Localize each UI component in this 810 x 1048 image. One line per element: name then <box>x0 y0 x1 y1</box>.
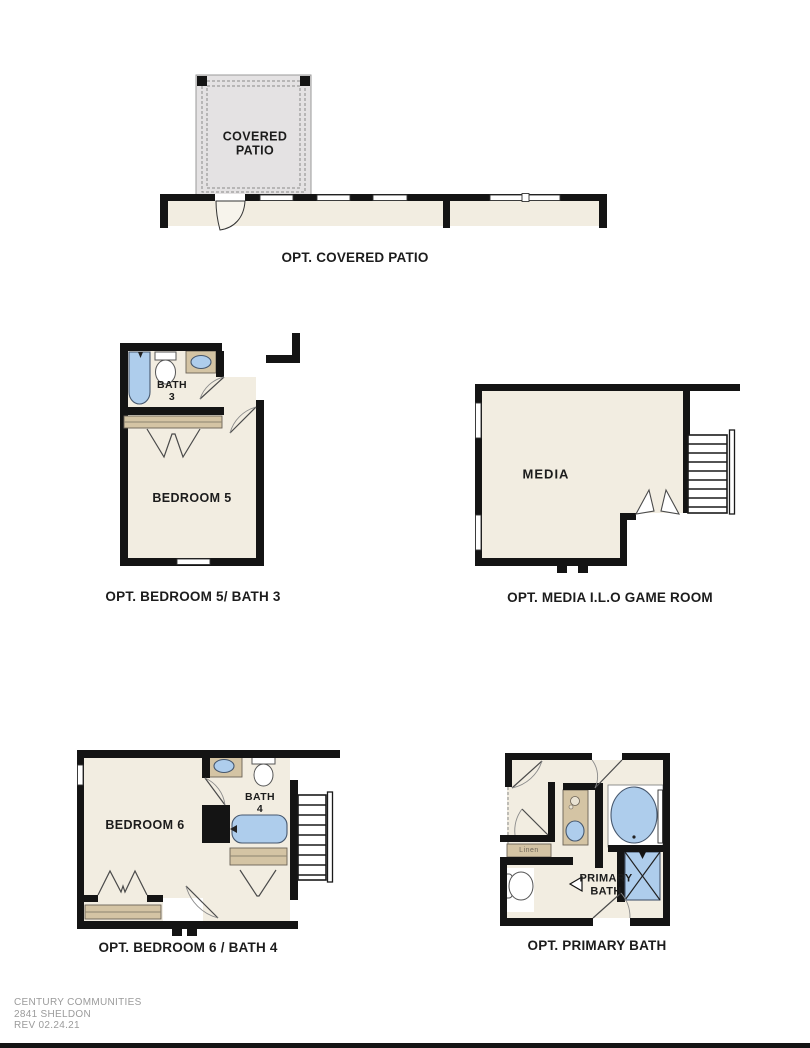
wall-bottom <box>77 921 298 929</box>
wall-middle-stub <box>443 194 450 228</box>
sink-icon <box>566 821 584 841</box>
bedroom6-label: BEDROOM 6 <box>105 818 184 832</box>
media-floor <box>482 391 683 558</box>
bath3-label: BATH 3 <box>157 379 187 403</box>
bottom-border-bar <box>0 1043 810 1048</box>
bedroom5-bath3-caption: OPT. BEDROOM 5/ BATH 3 <box>105 589 280 604</box>
patio-room-label: COVERED PATIO <box>223 130 288 159</box>
tub-drain <box>632 835 635 838</box>
stairs-icon <box>688 435 727 513</box>
wall-top <box>475 384 740 391</box>
revision-date: REV 02.24.21 <box>14 1020 142 1032</box>
wall-bottom <box>505 918 670 926</box>
wall-right <box>663 753 670 926</box>
window-left-upper <box>476 403 482 438</box>
wall-left-stub <box>505 753 512 787</box>
media-caption: OPT. MEDIA I.L.O GAME ROOM <box>507 590 713 605</box>
window-right <box>658 790 663 843</box>
wall-under-tub <box>608 845 663 852</box>
wall-vanity-right <box>595 783 603 868</box>
stairs-icon <box>298 795 326 880</box>
bedroom5-label: BEDROOM 5 <box>152 491 231 505</box>
wall-bath-right <box>216 351 224 377</box>
window <box>317 195 350 201</box>
wall-top <box>120 343 222 351</box>
closet-wall-left <box>84 895 98 902</box>
sink-icon <box>214 760 234 773</box>
wall-right-stub <box>599 194 607 228</box>
door-opening-top <box>592 753 622 760</box>
bedroom6-bath4-caption: OPT. BEDROOM 6 / BATH 4 <box>98 940 277 955</box>
toilet-bowl-icon <box>509 872 533 900</box>
bedroom5-bath3-plan: BATH 3 BEDROOM 5 <box>108 333 308 578</box>
wall-stub <box>187 929 197 936</box>
media-label: MEDIA <box>523 468 570 483</box>
wall-stub <box>578 566 588 573</box>
wall-left-stub <box>160 194 168 228</box>
wall-closet-bottom <box>500 835 555 842</box>
bedroom6-bath4-plan: BEDROOM 6 BATH 4 <box>68 743 358 943</box>
window-left <box>78 765 84 785</box>
bedroom5-floor <box>128 377 256 558</box>
wall-under-linen <box>500 857 573 865</box>
floorplan-sheet: COVERED PATIO OPT. COVERED PATIO <box>0 0 810 1048</box>
wall-right <box>256 400 264 566</box>
covered-patio-plan: COVERED PATIO <box>160 70 610 240</box>
wall-stub <box>557 566 567 573</box>
title-block: CENTURY COMMUNITIES 2841 SHELDON REV 02.… <box>14 997 142 1032</box>
toilet-bowl-icon <box>254 764 273 786</box>
plan-name: 2841 SHELDON <box>14 1009 142 1021</box>
wall-left-lower <box>500 857 507 926</box>
door-opening-bottom <box>593 918 630 926</box>
bedroom5-bath3-drawing <box>108 333 308 578</box>
primary-bath-caption: OPT. PRIMARY BATH <box>528 938 667 953</box>
wall-top <box>505 753 670 760</box>
wall-closet-right <box>548 782 555 835</box>
media-drawing <box>468 378 748 578</box>
closet-wall-right <box>147 895 163 902</box>
wall-notch-horizontal <box>627 513 636 520</box>
linen-label: Linen <box>519 846 539 854</box>
covered-patio-caption: OPT. COVERED PATIO <box>281 250 428 265</box>
faucet-decor-icon <box>571 797 580 806</box>
stair-rail <box>328 792 333 882</box>
wall-left <box>120 343 128 566</box>
wall-bath-bottom <box>120 407 224 415</box>
wall-stub <box>172 929 182 936</box>
wall-notch-vertical <box>620 513 627 558</box>
door-opening <box>215 194 245 201</box>
bath4-label: BATH 4 <box>245 791 275 815</box>
patio-post-right <box>300 76 310 86</box>
primary-bath-label: PRIMARY BATH <box>579 872 632 897</box>
media-plan: MEDIA <box>468 378 748 578</box>
window-mullion <box>522 194 529 202</box>
wall-stair-left <box>290 780 298 900</box>
bedroom6-bath4-drawing <box>68 743 358 943</box>
bathtub-icon <box>611 787 657 843</box>
window-bottom <box>177 559 210 565</box>
wall-block <box>202 805 230 843</box>
stair-rail <box>730 430 735 514</box>
window-left-lower <box>476 515 482 550</box>
bathtub-icon <box>232 815 287 843</box>
wall-hall-stub-horizontal <box>266 355 300 363</box>
sink-icon <box>191 356 211 369</box>
wall-bath-divider <box>202 756 210 778</box>
window <box>373 195 407 201</box>
window <box>260 195 293 201</box>
bathtub-icon <box>129 352 150 404</box>
toilet-tank-icon <box>155 352 176 360</box>
primary-bath-drawing <box>493 746 678 936</box>
wall-bottom <box>475 558 627 566</box>
faucet-decor-icon <box>569 805 573 809</box>
builder-name: CENTURY COMMUNITIES <box>14 997 142 1009</box>
primary-bath-plan: Linen PRIMARY BATH <box>493 746 678 936</box>
patio-post-left <box>197 76 207 86</box>
